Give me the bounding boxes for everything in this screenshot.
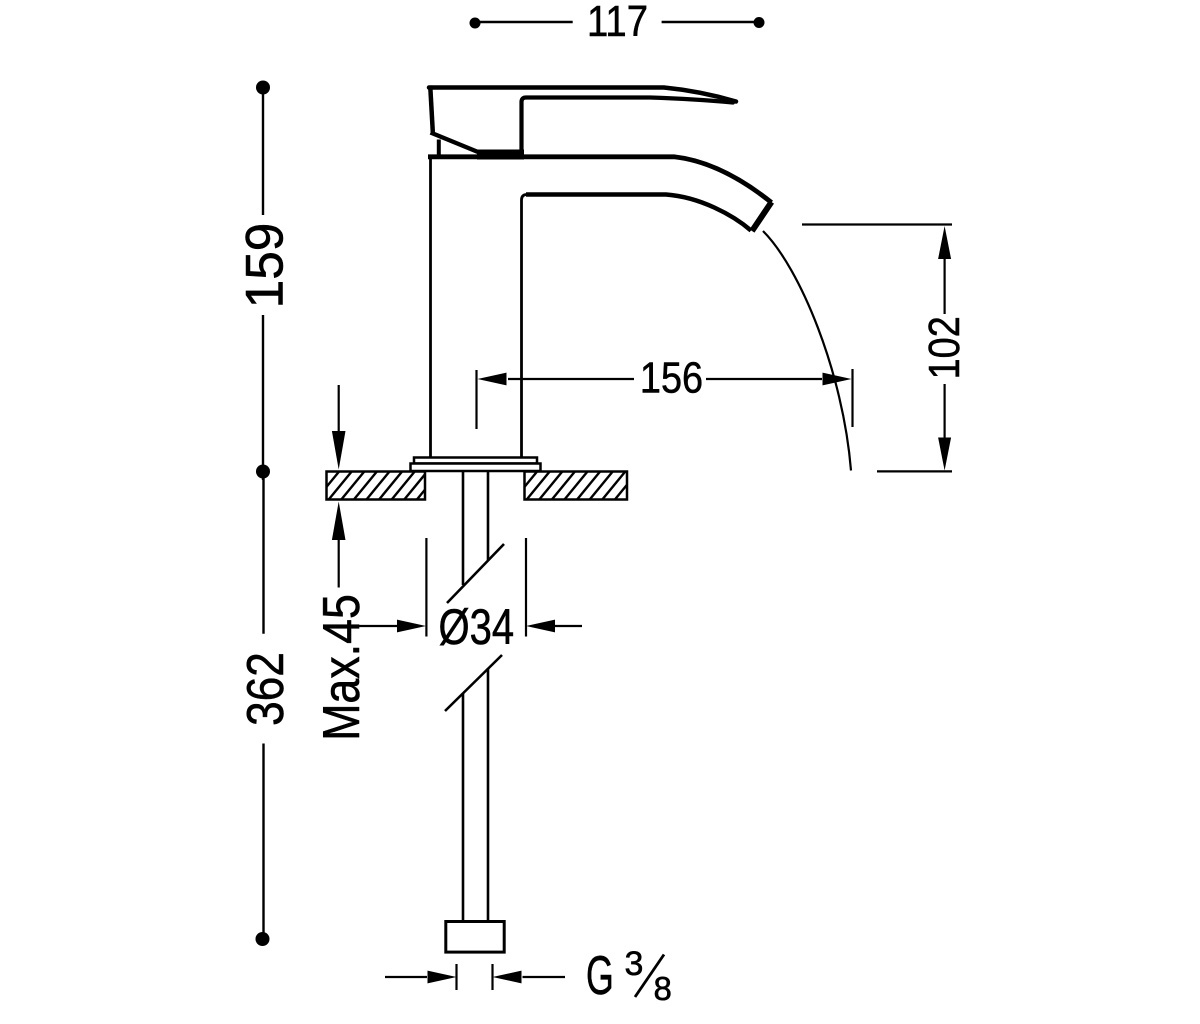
svg-text:8: 8 [654,970,672,1007]
svg-text:3: 3 [625,945,644,983]
svg-text:159: 159 [236,223,295,309]
svg-text:Max.45: Max.45 [313,594,371,741]
svg-text:Ø34: Ø34 [439,599,515,655]
svg-text:156: 156 [640,353,703,402]
svg-text:362: 362 [237,652,295,726]
svg-text:G: G [586,944,614,1006]
svg-text:117: 117 [587,0,648,46]
svg-text:102: 102 [920,316,969,379]
